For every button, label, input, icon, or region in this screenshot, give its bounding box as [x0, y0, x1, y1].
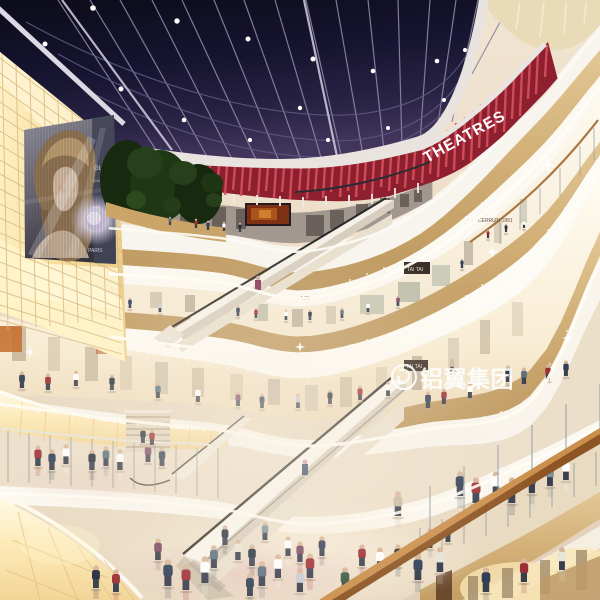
svg-text:CERRUTI 1881: CERRUTI 1881	[478, 218, 513, 224]
svg-text:铝翼集团: 铝翼集团	[420, 366, 514, 392]
